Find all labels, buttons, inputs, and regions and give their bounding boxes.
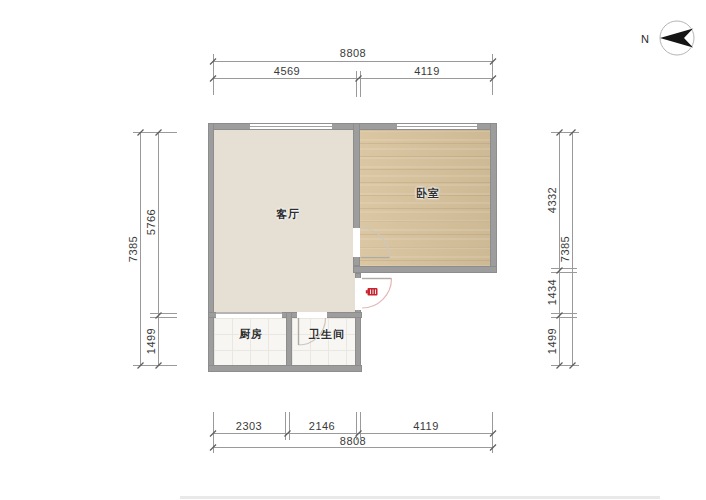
bathroom-door-arc	[299, 318, 326, 345]
door-swings	[299, 228, 392, 345]
plan-overlay	[0, 0, 706, 500]
dimension-lines	[133, 54, 579, 453]
bedroom-door-arc	[361, 228, 390, 258]
dimension-ticks	[138, 59, 576, 451]
entrance-door-icon	[366, 288, 378, 296]
north-arrow-icon	[660, 21, 694, 55]
floor-plan: 客厅 卧室 厨房 卫生间 8808 4569 4119 2303 2146 41…	[0, 0, 706, 500]
